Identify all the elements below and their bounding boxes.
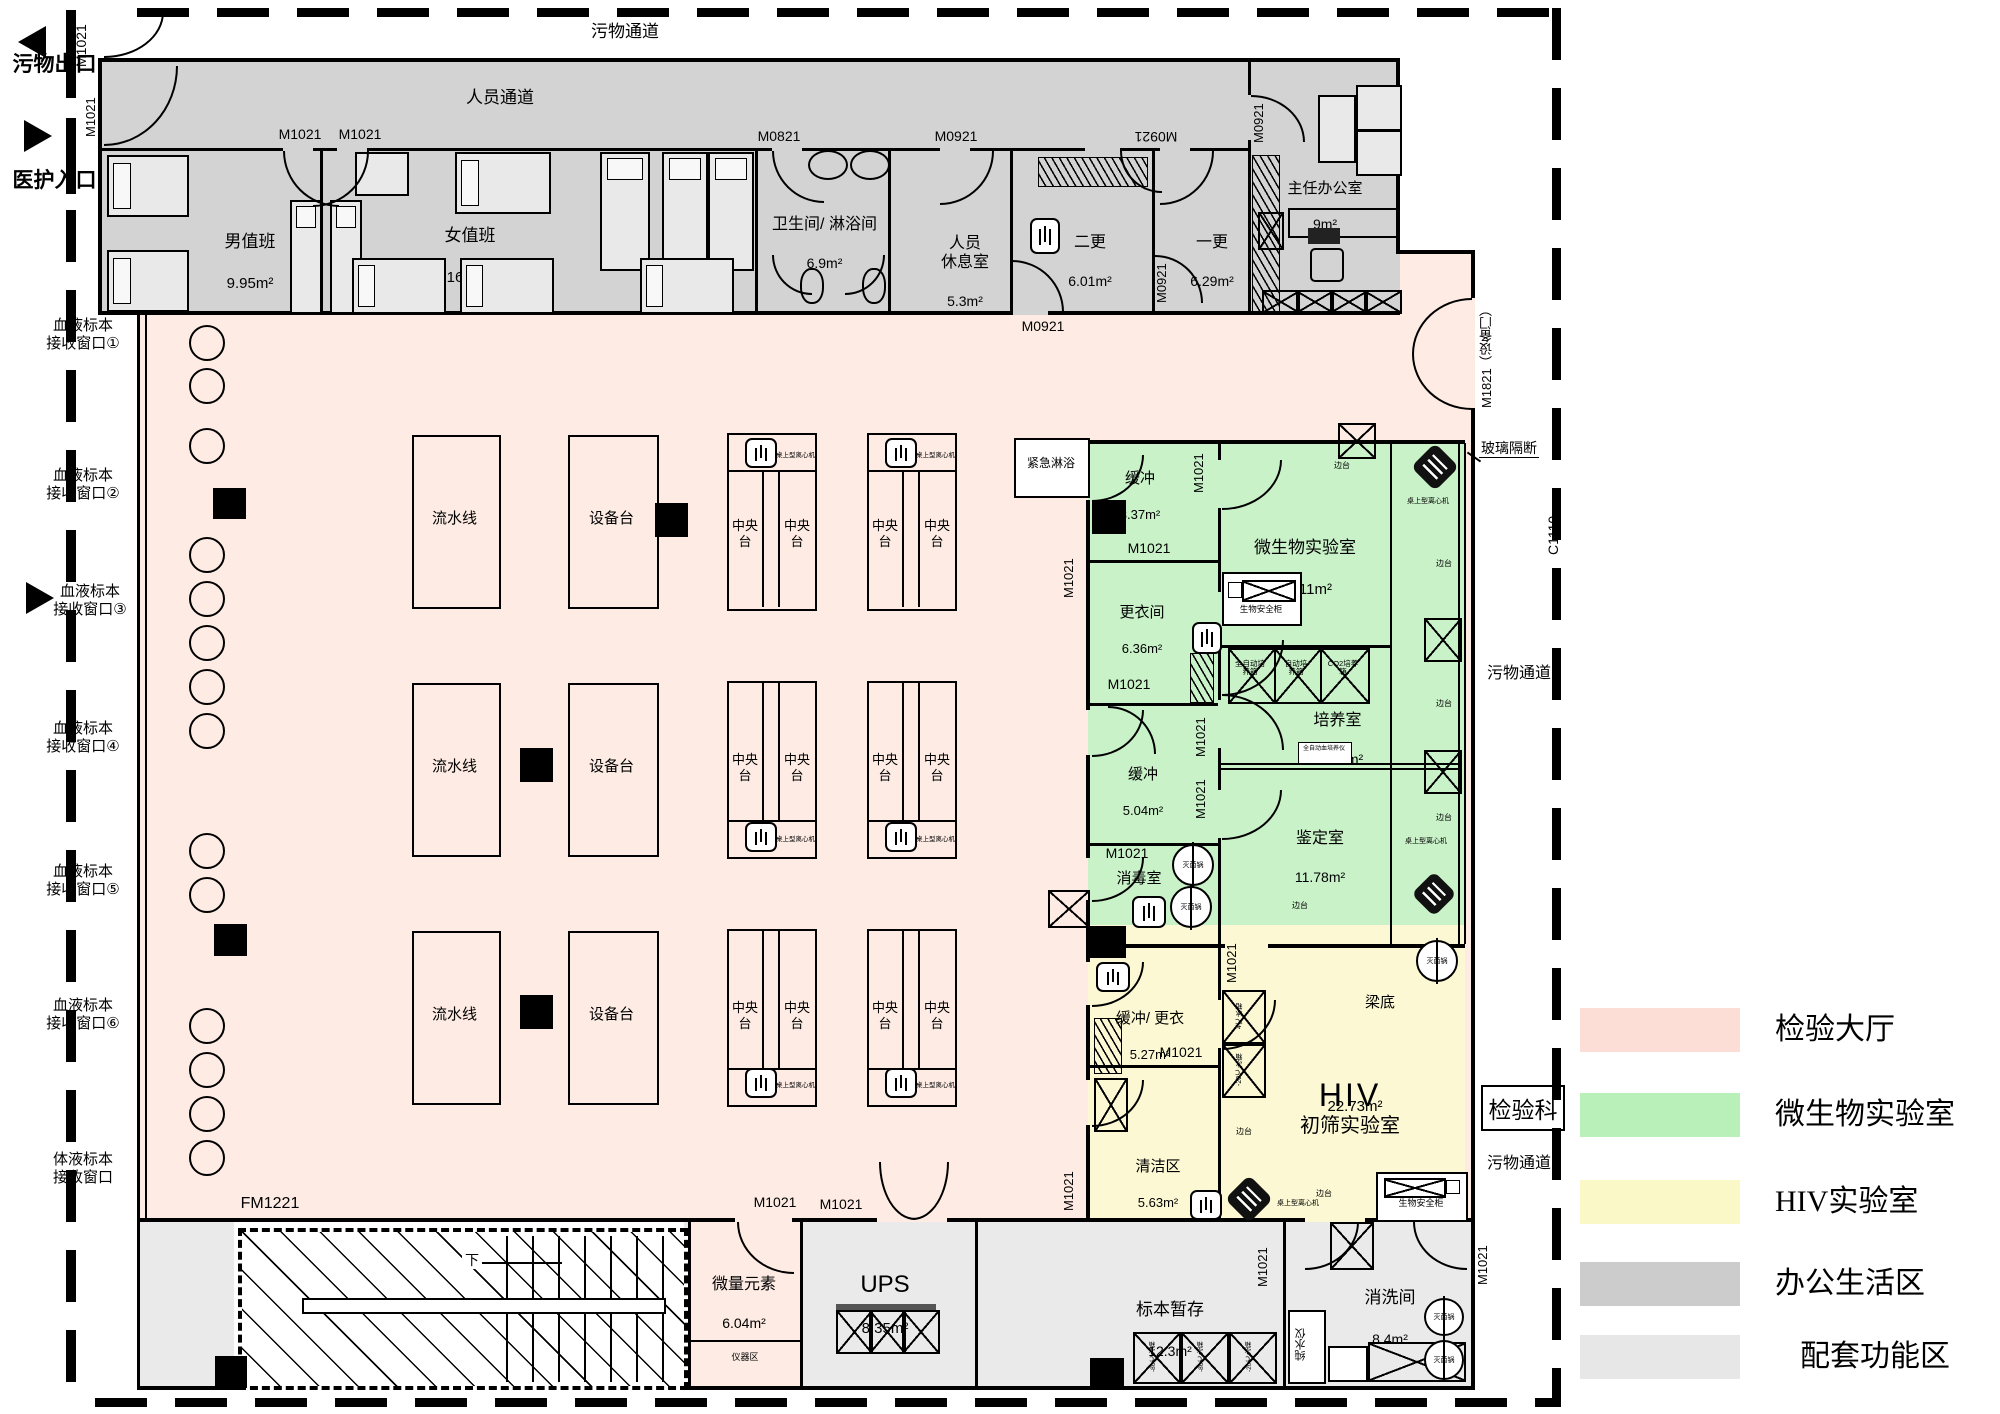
locker (1190, 653, 1214, 703)
legend-swatch-support (1580, 1335, 1740, 1379)
sink-icon (1192, 622, 1222, 654)
sterilizer-icon: 灭菌锅 (1172, 844, 1214, 886)
door-label-m1021: M1021 (1256, 1240, 1269, 1295)
sink-icon (745, 1068, 777, 1098)
wall (1218, 440, 1221, 460)
stool (189, 1096, 225, 1132)
room-name: 卫生间/ 淋浴间 (772, 216, 877, 233)
glass-partition-line (1458, 443, 1460, 944)
room-name: 更衣间 (1119, 604, 1164, 621)
bed (107, 155, 189, 217)
door-label-m1021: M1021 (1118, 540, 1180, 557)
fridge-icon (1424, 618, 1462, 662)
bench-equip-label: 设备台 (568, 510, 655, 528)
door-label-m1021: M1021 (1194, 710, 1207, 765)
stool (189, 325, 225, 361)
room-name: 鉴定室 (1296, 830, 1344, 847)
side-bench-label: 边台 (1432, 560, 1456, 569)
central-bench-label: 中央台 (779, 518, 815, 549)
room-micro-change: 更衣间 6.36m² (1102, 586, 1182, 658)
waste-exit-label: 污物出口 (2, 52, 107, 77)
cabinet (1296, 290, 1334, 314)
room-name: 标本暂存 (1136, 1300, 1204, 1319)
room-micro-buffer2: 缓冲 5.04m² (1108, 748, 1178, 820)
bio-safety-cabinet: 生物安全柜 (1222, 572, 1302, 626)
side-bench-label: 边台 (1432, 700, 1456, 709)
central-bench-label: 中央台 (867, 1000, 903, 1031)
side-bench-label: 边台 (1288, 902, 1312, 911)
stool (189, 1140, 225, 1176)
column (213, 488, 246, 519)
wall (98, 58, 1400, 62)
legend-label-support: 配套功能区 (1800, 1339, 2000, 1375)
wall (755, 148, 758, 315)
computer (1308, 228, 1340, 244)
centrifuge-label: 桌上型离心机 (1398, 498, 1458, 506)
legend-label-hiv: HIV实验室 (1775, 1184, 2000, 1220)
wall (1086, 560, 1218, 563)
room-area: 11.78m² (1295, 869, 1345, 885)
wall (137, 1218, 735, 1222)
column (655, 503, 688, 537)
cabinet (1262, 290, 1300, 314)
sink-icon (885, 1068, 917, 1098)
wash-sink (1328, 1346, 1368, 1382)
waste-corridor-top-label: 污物通道 (580, 22, 670, 42)
door-label-m1021: M1021 (270, 126, 330, 143)
fridge-m86-label: -86℃冰箱 (1150, 1336, 1157, 1378)
stool (189, 713, 225, 749)
bench-line-label: 流水线 (412, 758, 497, 776)
sink-icon (885, 438, 917, 468)
reception-window-5: 血液标本 接收窗口⑤ (28, 863, 138, 899)
wall (1248, 62, 1251, 95)
door-label-m1021: M1021 (330, 126, 390, 143)
legend-label-office: 办公生活区 (1775, 1266, 2000, 1302)
reception-window-4: 血液标本 接收窗口④ (28, 720, 138, 756)
centrifuge-label: 桌上型离心机 (776, 452, 824, 459)
wall (1086, 703, 1218, 706)
central-bench-label: 中央台 (727, 752, 763, 783)
door-label-m1021: M1021 (74, 16, 88, 76)
wall (1396, 250, 1475, 254)
room-micro-identify: 鉴定室 11.78m² (1265, 810, 1375, 887)
centrifuge-label: 桌上型离心机 (916, 452, 964, 459)
staff-entrance-label: 医护入口 (2, 168, 107, 193)
central-bench-label: 中央台 (867, 518, 903, 549)
reception-window-fluid: 体液标本 接收窗口 (28, 1151, 138, 1187)
wall (98, 148, 283, 151)
wall (792, 1218, 877, 1222)
room-hiv-lab: HIV 初筛实验室 (1240, 1052, 1460, 1138)
incubator-auto-label: 自动培 养箱 (1274, 660, 1318, 677)
room-area: 5.04m² (1123, 803, 1163, 818)
boundary-right (1552, 8, 1561, 1398)
sink-icon (1132, 896, 1166, 928)
central-bench-label: 中央台 (779, 752, 815, 783)
fridge-icon (1338, 423, 1376, 459)
desk (1288, 208, 1398, 238)
boundary-bottom (95, 1398, 1561, 1407)
department-label: 检验科 (1489, 1091, 1558, 1125)
room-name: 培养室 (1313, 712, 1361, 729)
room-name: 男值班 (225, 232, 276, 251)
bench-equip-label: 设备台 (568, 758, 655, 776)
column (214, 924, 247, 956)
bed (107, 250, 189, 312)
room-hiv-clean: 清洁区 5.63m² (1118, 1140, 1198, 1212)
door-label-fm1221: FM1221 (230, 1194, 310, 1213)
door-arc (104, 12, 164, 58)
door-label-m1021: M1021 (744, 1194, 806, 1211)
door-label-m0921: M0921 (1012, 318, 1074, 335)
room-area: 6.01m² (1068, 273, 1112, 289)
central-bench-label: 中央台 (727, 1000, 763, 1031)
room-area: 6.36m² (1122, 641, 1162, 656)
floor-plan: 污物出口 医护入口 M1021 M1021 血液标本 接收窗口① 血液标本 接收… (0, 0, 2000, 1414)
stool (189, 833, 225, 869)
bed (455, 152, 551, 214)
wall (1471, 254, 1475, 298)
wall (1218, 508, 1221, 592)
stool (189, 1008, 225, 1044)
wall (690, 1340, 800, 1342)
room-name: 一更 (1196, 234, 1228, 251)
bed (290, 200, 322, 314)
glass-partition-label: 玻璃隔断 (1479, 440, 1539, 458)
door-label-m1021: M1021 (810, 1196, 872, 1213)
bed (460, 258, 554, 314)
legend-label-micro: 微生物实验室 (1775, 1097, 2000, 1133)
stool (189, 625, 225, 661)
column (1090, 1358, 1124, 1388)
instrument-strip-label: 仪器区 (700, 1352, 790, 1363)
stool (189, 368, 225, 404)
washbasin-icon (850, 150, 890, 180)
door-label-m1021: M1021 (84, 92, 97, 142)
bed (352, 258, 446, 314)
bio-safety-cabinet: 生物安全柜 (1376, 1172, 1468, 1222)
door-label-m1021: M1021 (1062, 548, 1075, 608)
bio-cabinet-label: 生物安全柜 (1224, 604, 1298, 614)
fridge-m20 (1222, 1044, 1266, 1098)
central-bench-label: 中央台 (919, 752, 955, 783)
bed (662, 152, 708, 271)
legend-swatch-hall (1580, 1008, 1740, 1052)
water-purifier-label: 纯水仪 (1296, 1316, 1307, 1374)
central-bench-label: 中央台 (779, 1000, 815, 1031)
sterilizer-icon: 灭菌锅 (1424, 1298, 1464, 1336)
legend-swatch-office (1580, 1262, 1740, 1306)
fridge-m20-label: -20℃冰箱 (1236, 1048, 1244, 1092)
stool (189, 669, 225, 705)
reception-window-1: 血液标本 接收窗口① (28, 317, 138, 353)
room-name: 人员 休息室 (941, 235, 989, 271)
sterilizer-icon: 灭菌锅 (1170, 886, 1212, 928)
wall (367, 148, 772, 151)
central-bench-label: 中央台 (727, 518, 763, 549)
stair-down-label: 下 (462, 1252, 482, 1269)
room-name: 缓冲/ 更衣 (1116, 1010, 1184, 1027)
eye-wash-station (1048, 890, 1090, 928)
fridge-m86-label: -86℃冰箱 (1198, 1336, 1205, 1378)
door-label-m1021: M1021 (1476, 1238, 1489, 1293)
sink-icon (885, 822, 917, 852)
sterilizer-icon: 灭菌锅 (1416, 940, 1458, 982)
centrifuge-label: 桌上型离心机 (1268, 1200, 1328, 1208)
room-area: 5.3m² (947, 293, 983, 309)
legend-swatch-hiv (1580, 1180, 1740, 1224)
room-name: 清洁区 (1135, 1158, 1180, 1175)
room-name: 缓冲 (1128, 766, 1158, 783)
room-area: 3.37m² (1120, 507, 1160, 522)
column (215, 1356, 247, 1388)
side-bench-label: 边台 (1312, 1190, 1336, 1199)
sink-icon (1190, 1190, 1222, 1220)
room-area: 5.63m² (1138, 1195, 1178, 1210)
wall (137, 315, 140, 1390)
side-bench-label: 边台 (1432, 814, 1456, 823)
door-label-m1021: M1021 (1194, 772, 1207, 827)
stool (189, 581, 225, 617)
wall (98, 58, 102, 315)
column (1090, 926, 1126, 958)
room-male-duty: 男值班 9.95m² (195, 212, 305, 294)
glass-partition-line (1464, 443, 1466, 944)
boundary-top (137, 8, 1561, 17)
wall (1086, 1125, 1090, 1222)
reception-window-6: 血液标本 接收窗口⑥ (28, 997, 138, 1033)
stool (189, 1052, 225, 1088)
bench-line-label: 流水线 (412, 510, 497, 528)
department-box: 检验科 (1481, 1085, 1565, 1131)
door-label-m1021: M1021 (1098, 676, 1160, 693)
window-label-c1110: C1110 (1546, 503, 1560, 567)
wall (145, 315, 147, 1218)
central-bench-label: 中央台 (919, 518, 955, 549)
personnel-corridor-label: 人员通道 (455, 88, 545, 108)
wall (888, 148, 891, 315)
room-name: UPS (860, 1271, 909, 1298)
door-label-m0921: M0921 (1125, 128, 1187, 145)
sterilizer-label: 灭菌锅 (1434, 1312, 1455, 1322)
room-area: 6.04m² (722, 1315, 766, 1331)
bed (708, 152, 754, 271)
sink-icon (745, 822, 777, 852)
central-bench-label: 中央台 (867, 752, 903, 783)
bench-line-label: 流水线 (412, 1006, 497, 1024)
bench-equip-label: 设备台 (568, 1006, 655, 1024)
fridge-icon (1424, 750, 1462, 794)
blood-culture-label: 全自动血培养仪 (1298, 746, 1350, 753)
door-label-m1821: M1821（设备门） (1480, 288, 1493, 423)
wall (1086, 1005, 1090, 1080)
stair-arrow (482, 1262, 562, 1264)
hiv-lab-cn: 初筛实验室 (1300, 1115, 1400, 1137)
cabinet (1364, 290, 1402, 314)
room-name: 女值班 (445, 226, 496, 245)
staff-entrance-arrow-icon (24, 120, 52, 152)
stool (189, 877, 225, 913)
wall (975, 1222, 978, 1386)
room-change2: 二更 6.01m² (1050, 214, 1130, 291)
door-label-m1021: M1021 (1225, 938, 1238, 988)
sterilizer-label: 灭菌锅 (1181, 902, 1202, 912)
centrifuge-label: 桌上型离心机 (1396, 838, 1456, 846)
wall (98, 311, 1012, 315)
reception-window-2: 血液标本 接收窗口② (28, 467, 138, 503)
sofa (1318, 95, 1356, 163)
incubator-co2-label: CO2培养 箱 (1320, 660, 1366, 677)
battery-box (902, 1310, 940, 1354)
cabinet (1330, 290, 1368, 314)
sterilizer-label: 灭菌锅 (1427, 956, 1448, 966)
bench-edge (1390, 440, 1392, 944)
side-bench-label: 边台 (1232, 1128, 1256, 1137)
legend-swatch-micro (1580, 1093, 1740, 1137)
chair (1310, 248, 1344, 282)
sofa (1356, 85, 1402, 131)
sofa (1356, 130, 1402, 176)
emergency-shower-label: 紧急淋浴 (1016, 456, 1086, 470)
room-name: 微量元素 (712, 1276, 776, 1293)
sterilizer-icon: 灭菌锅 (1424, 1340, 1464, 1380)
bio-cabinet-label: 生物安全柜 (1378, 1198, 1464, 1209)
room-area: 9.95m² (227, 275, 274, 292)
beam-label: 梁底 (1350, 994, 1410, 1012)
door-label-m0821: M0821 (748, 128, 810, 145)
door-label-m1021: M1021 (1192, 446, 1205, 501)
cabinet (1258, 212, 1284, 250)
wall (800, 1222, 803, 1386)
centrifuge-label: 桌上型离心机 (916, 1082, 964, 1089)
room-hiv-lab-area: 22.73m² (1300, 1098, 1410, 1116)
sink-icon (1030, 218, 1060, 254)
boundary-left (66, 210, 76, 1396)
wall (1218, 947, 1221, 1000)
wall (1471, 408, 1475, 1390)
waste-corridor-right-upper-label: 污物通道 (1480, 664, 1558, 683)
central-bench-label: 中央台 (919, 1000, 955, 1031)
battery-box (869, 1310, 906, 1354)
legend-label-hall: 检验大厅 (1775, 1012, 2000, 1048)
column (520, 748, 553, 782)
water-purifier (1288, 1310, 1326, 1384)
stool (189, 428, 225, 464)
wall (1283, 1222, 1286, 1386)
centrifuge-label: 桌上型离心机 (916, 836, 964, 843)
stool (189, 537, 225, 573)
room-lounge: 人员 休息室 5.3m² (925, 215, 1005, 311)
fridge-m20-label: -20℃冰箱 (1246, 1336, 1253, 1378)
waste-corridor-right-lower-label: 污物通道 (1480, 1154, 1558, 1173)
wall (1086, 500, 1090, 710)
column (520, 995, 553, 1029)
room-name: 二更 (1074, 234, 1106, 251)
sterilizer-label: 灭菌锅 (1434, 1355, 1455, 1365)
bed (640, 258, 734, 314)
room-name: 微生物实验室 (1254, 538, 1356, 557)
battery-box (836, 1310, 873, 1354)
sink-icon (745, 438, 777, 468)
side-bench-label: 边台 (1330, 462, 1354, 471)
bed (600, 152, 650, 271)
room-name: 消洗间 (1365, 1288, 1416, 1307)
wall (1086, 440, 1465, 444)
wall (688, 1222, 691, 1386)
door-label-m1021: M1021 (1150, 1044, 1212, 1061)
door-label-m1021: M1021 (1062, 1166, 1075, 1216)
centrifuge-label: 桌上型离心机 (776, 1082, 824, 1089)
reception-window-3: 血液标本 接收窗口③ (40, 583, 140, 619)
room-name: 主任办公室 (1287, 180, 1362, 197)
wall (1218, 838, 1221, 944)
centrifuge-label: 桌上型离心机 (776, 836, 824, 843)
locker (1094, 1018, 1122, 1074)
sterilizer-label: 灭菌锅 (1183, 860, 1204, 870)
door-label-m0921: M0921 (925, 128, 987, 145)
